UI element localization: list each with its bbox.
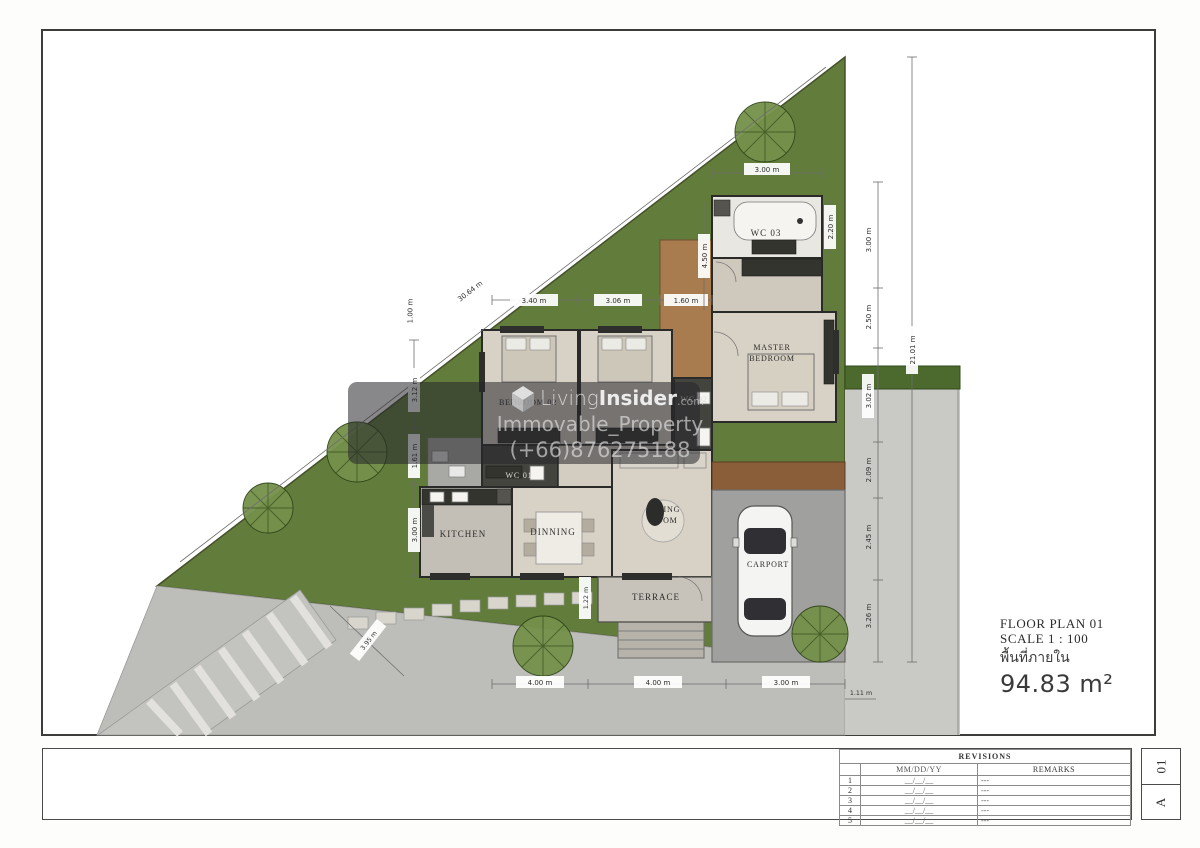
dim-terrace-step: 1.22 m [583, 587, 590, 609]
label-living-1: LIVING [648, 505, 680, 514]
revision-date: __/__/__ [861, 796, 978, 806]
dim-top3: 1.60 m [674, 297, 699, 305]
dim-wc03-width: 2.20 m [827, 215, 835, 240]
ac-unit-icon [449, 466, 465, 477]
dim-bottom2: 4.00 m [646, 679, 671, 687]
tree-icon [513, 616, 573, 676]
drawing-sheet: 30.64 m 1.00 m 3.12 m 1.61 m 3.00 m 3.00… [0, 0, 1200, 848]
floor-plan-drawing: 30.64 m 1.00 m 3.12 m 1.61 m 3.00 m 3.00… [0, 0, 1200, 848]
washer-icon [714, 200, 730, 216]
dim-right6: 3.26 m [865, 604, 873, 629]
label-wc03: WC 03 [751, 228, 782, 238]
stove-icon [452, 492, 468, 502]
revisions-date-header: MM/DD/YY [861, 764, 978, 776]
sheet-number-box: 01 A [1141, 748, 1181, 820]
revisions-remarks-header: REMARKS [978, 764, 1131, 776]
revision-row: 3 __/__/__ --- [840, 796, 1131, 806]
revision-date: __/__/__ [861, 786, 978, 796]
label-carport: CARPORT [747, 560, 789, 569]
revision-no: 4 [840, 806, 861, 816]
dim-right4: 2.09 m [865, 458, 873, 483]
revisions-title: REVISIONS [840, 750, 1131, 764]
tub-drain-icon [797, 218, 803, 224]
revision-row: 5 __/__/__ --- [840, 816, 1131, 826]
revision-date: __/__/__ [861, 776, 978, 786]
area-value: 94.83 m² [1000, 670, 1113, 698]
dim-bottom3: 3.00 m [774, 679, 799, 687]
area-label-thai: พื้นที่ภายใน [1000, 650, 1113, 667]
dim-right2: 2.50 m [865, 305, 873, 330]
plan-title: FLOOR PLAN 01 [1000, 616, 1113, 631]
wood-deck [712, 462, 845, 490]
sink-icon [430, 492, 444, 502]
right-road [845, 388, 960, 735]
tree-icon [735, 102, 795, 162]
revisions-no-header [840, 764, 861, 776]
label-master-2: BEDROOM [749, 354, 795, 363]
dim-top1: 3.40 m [522, 297, 547, 305]
label-kitchen: KITCHEN [440, 529, 487, 539]
dim-bottom4: 1.11 m [850, 690, 872, 697]
label-terrace: TERRACE [632, 592, 680, 602]
dim-right5: 2.45 m [865, 525, 873, 550]
revision-date: __/__/__ [861, 806, 978, 816]
revision-row: 1 __/__/__ --- [840, 776, 1131, 786]
bed-icon [598, 336, 652, 382]
tree-icon [792, 606, 848, 662]
plan-scale: SCALE 1 : 100 [1000, 631, 1113, 646]
label-dinning: DINNING [530, 527, 576, 537]
sheet-letter: A [1153, 797, 1169, 807]
revision-remark: --- [978, 816, 1131, 826]
sheet-number: 01 [1153, 759, 1169, 774]
revision-no: 5 [840, 816, 861, 826]
revision-no: 3 [840, 796, 861, 806]
revision-row: 4 __/__/__ --- [840, 806, 1131, 816]
revision-remark: --- [978, 786, 1131, 796]
dim-wc03-side: 4.50 m [701, 244, 709, 269]
cabinet-row [742, 259, 822, 276]
watermark: LivingInsider.com Immovable_Property (+6… [348, 382, 704, 464]
revision-remark: --- [978, 806, 1131, 816]
svg-text:1.00 m: 1.00 m [407, 299, 415, 324]
bed-icon [502, 336, 556, 382]
master-closet [824, 320, 834, 384]
dim-right3: 3.02 m [865, 384, 873, 409]
revision-no: 2 [840, 786, 861, 796]
fridge-icon [497, 489, 511, 504]
entry-steps [618, 622, 704, 658]
revision-no: 1 [840, 776, 861, 786]
kitchen-counter-side [422, 505, 434, 537]
label-master-1: MASTER [753, 343, 790, 352]
sheet-letter-cell: A [1142, 785, 1180, 820]
dim-left3: 3.00 m [411, 518, 419, 543]
revision-date: __/__/__ [861, 816, 978, 826]
title-block: FLOOR PLAN 01 SCALE 1 : 100 พื้นที่ภายใน… [1000, 616, 1113, 698]
revision-row: 2 __/__/__ --- [840, 786, 1131, 796]
dim-top-wc03: 3.00 m [755, 166, 780, 174]
watermark-phone: (+66)876275188 [510, 438, 691, 462]
dim-right-total: 21.01 m [909, 335, 917, 364]
vanity-counter [752, 240, 796, 254]
revision-remark: --- [978, 796, 1131, 806]
label-wc01: WC 01 [506, 471, 533, 480]
revision-remark: --- [978, 776, 1131, 786]
dim-left-offset: 1.00 m [404, 289, 416, 333]
watermark-account: Immovable_Property [497, 412, 704, 436]
dim-right1: 3.00 m [865, 228, 873, 253]
revision-strip: REVISIONS MM/DD/YY REMARKS 1 __/__/__ --… [42, 748, 1132, 820]
dim-bottom1: 4.00 m [528, 679, 553, 687]
dim-top2: 3.06 m [606, 297, 631, 305]
revisions-table: REVISIONS MM/DD/YY REMARKS 1 __/__/__ --… [839, 749, 1131, 826]
label-living-2: ROOM [650, 516, 677, 525]
sheet-number-cell: 01 [1142, 749, 1180, 785]
car-icon [733, 506, 797, 636]
